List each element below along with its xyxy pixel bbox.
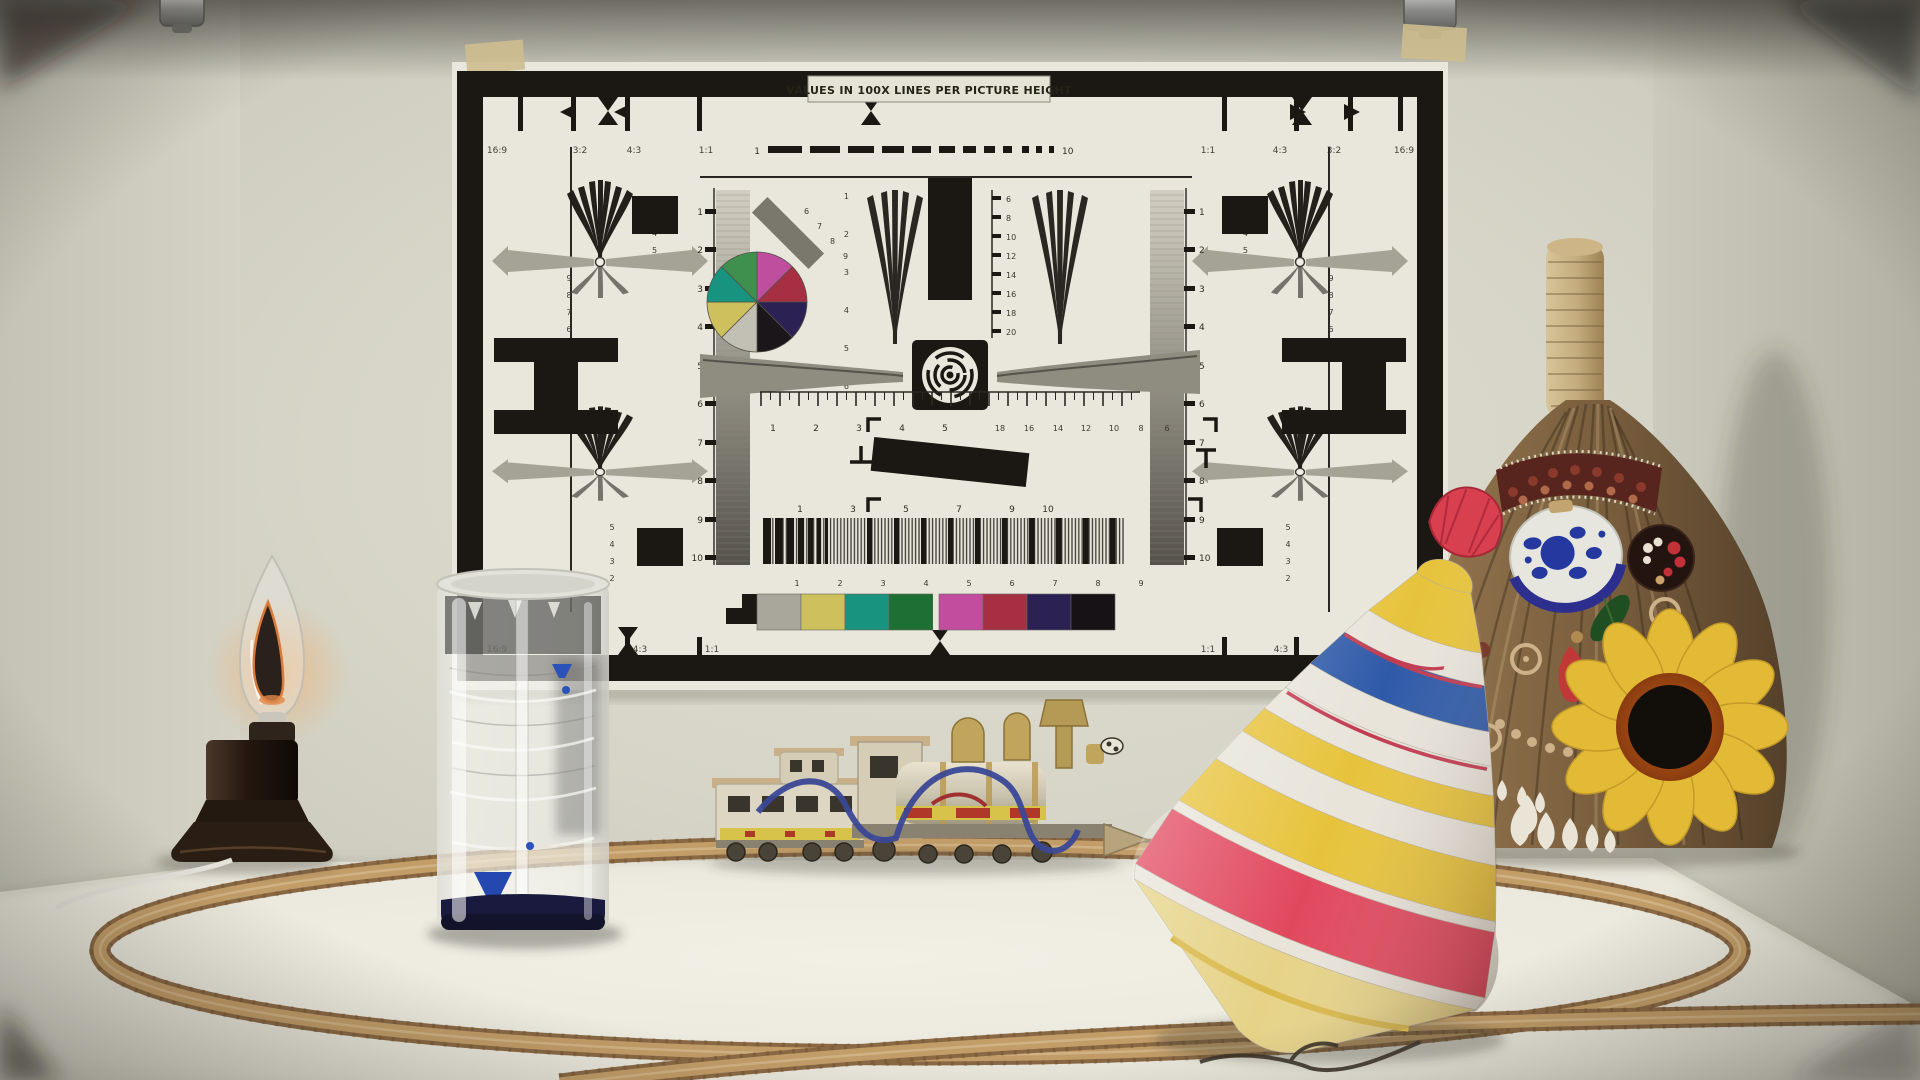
test-lab-scene: VALUES IN 100X LINES PER PICTURE HEIGHT … [0,0,1920,1080]
vignette-overlay [0,0,1920,1080]
scene-canvas: VALUES IN 100X LINES PER PICTURE HEIGHT … [0,0,1920,1080]
